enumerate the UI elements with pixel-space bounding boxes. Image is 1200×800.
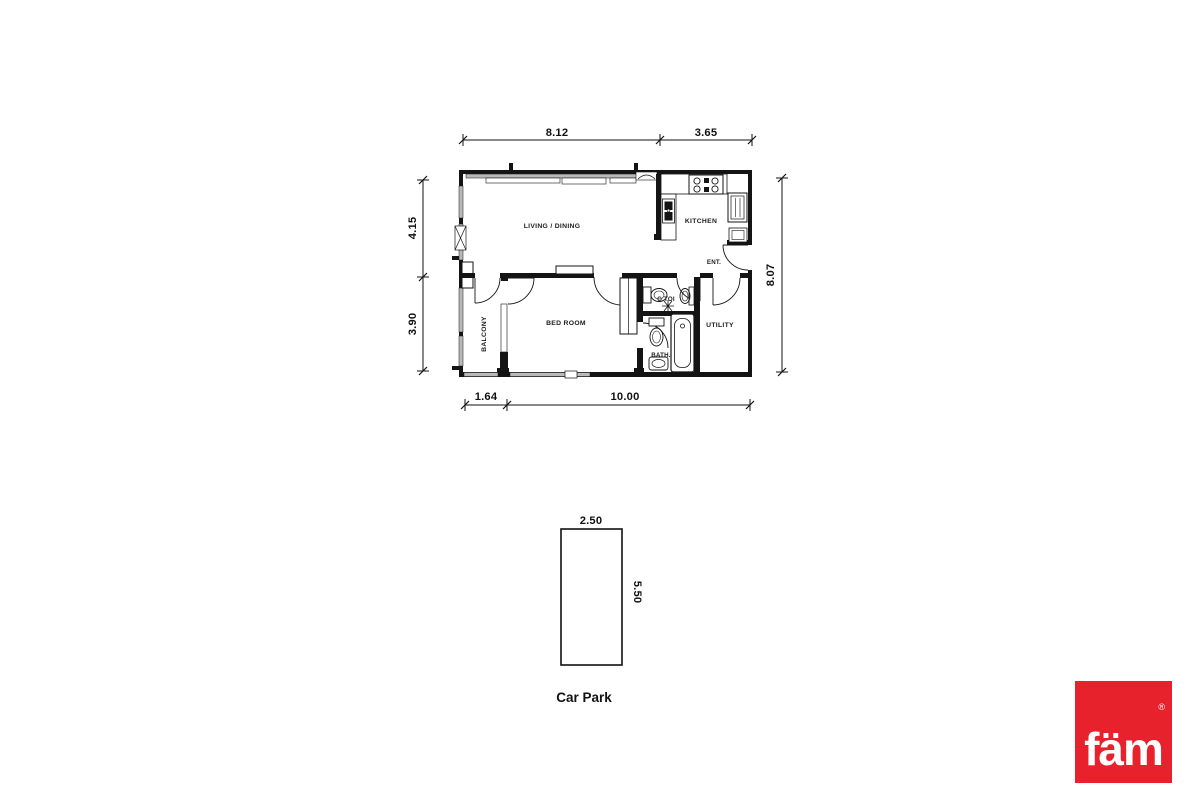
car-park-title: Car Park	[556, 690, 612, 705]
room-label-entrance: ENT.	[707, 259, 721, 266]
kitchen-sink-icon	[663, 199, 675, 223]
utility-door-arc-icon	[713, 278, 740, 305]
room-label-balcony: BALCONY	[481, 316, 488, 352]
sideboard-icon	[556, 266, 593, 274]
bath-door-arc-icon	[643, 323, 668, 348]
kitchen-fixtures	[661, 174, 747, 242]
car-park-outline	[561, 529, 622, 665]
room-label-bed-room: BED ROOM	[546, 320, 586, 327]
floor-plan-canvas: LIVING / DINING KITCHEN BED ROOM BALCONY…	[0, 0, 1200, 800]
kitchen-cabinet-icon	[729, 228, 747, 242]
car-park-dim-width: 2.50	[580, 515, 603, 527]
toilet-icon	[649, 318, 664, 346]
bathtub-icon	[671, 314, 694, 372]
car-park-dim-length: 5.50	[631, 581, 643, 604]
room-label-bath: BATH.	[651, 352, 671, 359]
dim-left-upper: 4.15	[407, 217, 419, 240]
room-label-guest-toilet: G.TOI	[657, 296, 675, 303]
dim-bottom-main: 10.00	[611, 391, 640, 403]
fridge-icon	[728, 193, 747, 222]
dim-left-lower: 3.90	[407, 313, 419, 336]
stove-icon	[689, 175, 723, 194]
room-label-kitchen: KITCHEN	[685, 218, 717, 225]
fam-logo-text: fäm	[1075, 726, 1172, 772]
wardrobe-icon	[620, 278, 637, 334]
bedroom-door-arc-icon	[594, 277, 622, 305]
balcony-door-arc-icon	[475, 278, 500, 303]
dim-right-total: 8.07	[765, 264, 777, 287]
car-park: 2.50 5.50 Car Park	[556, 515, 643, 705]
dim-top-living: 8.12	[546, 127, 569, 139]
room-label-living-dining: LIVING / DINING	[524, 223, 581, 230]
fam-logo: fäm ®	[1075, 681, 1172, 783]
dim-top-kitchen: 3.65	[695, 127, 718, 139]
room-label-utility: UTILITY	[706, 322, 734, 329]
registered-trademark-icon: ®	[1158, 703, 1165, 712]
gtoi-basin-icon	[680, 287, 694, 305]
entrance-door-arc-icon	[723, 245, 748, 270]
bedroom-balcony-door-arc-icon	[508, 278, 534, 304]
dim-bottom-balcony: 1.64	[475, 391, 498, 403]
